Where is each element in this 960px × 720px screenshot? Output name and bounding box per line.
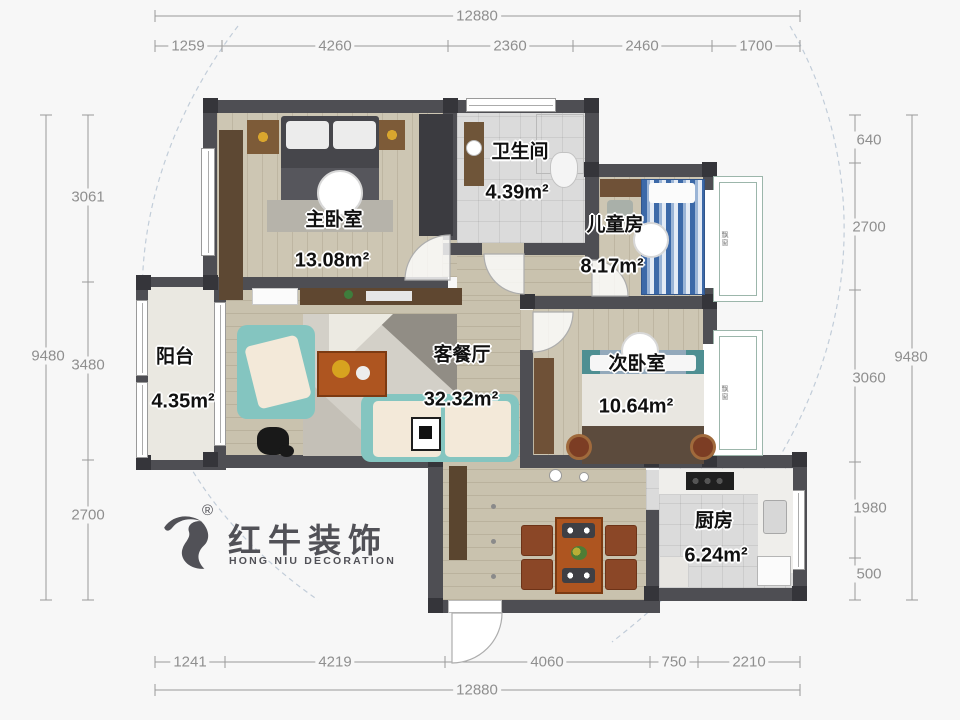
room-label-second: 次卧室 bbox=[608, 349, 665, 376]
logo-english-name: HONG NIU DECORATION bbox=[229, 555, 396, 567]
room-label-master: 主卧室 bbox=[305, 205, 362, 232]
room-area-second: 10.64m² bbox=[599, 396, 674, 419]
room-label-bath: 卫生间 bbox=[491, 137, 548, 164]
room-label-living: 客餐厅 bbox=[433, 340, 490, 367]
door-master bbox=[405, 235, 450, 280]
door-entry bbox=[452, 613, 502, 663]
floorplan-canvas: 12880 1259 4260 2360 2460 1700 1241 4219… bbox=[0, 0, 960, 720]
brand-logo: ® 红牛装饰 HONG NIU DECORATION bbox=[150, 498, 430, 588]
room-area-living: 32.32m² bbox=[424, 389, 499, 412]
room-label-kids: 儿童房 bbox=[586, 210, 643, 237]
room-label-balcony: 阳台 bbox=[156, 342, 194, 369]
registered-mark: ® bbox=[202, 502, 213, 519]
room-area-balcony: 4.35m² bbox=[151, 391, 214, 414]
door-second bbox=[533, 312, 573, 352]
room-area-master: 13.08m² bbox=[295, 250, 370, 273]
room-label-kitchen: 厨房 bbox=[695, 506, 733, 533]
room-area-kids: 8.17m² bbox=[580, 256, 643, 279]
bull-logo-icon bbox=[158, 510, 224, 578]
room-area-bath: 4.39m² bbox=[485, 182, 548, 205]
door-bathroom bbox=[484, 254, 524, 294]
room-area-kitchen: 6.24m² bbox=[684, 545, 747, 568]
